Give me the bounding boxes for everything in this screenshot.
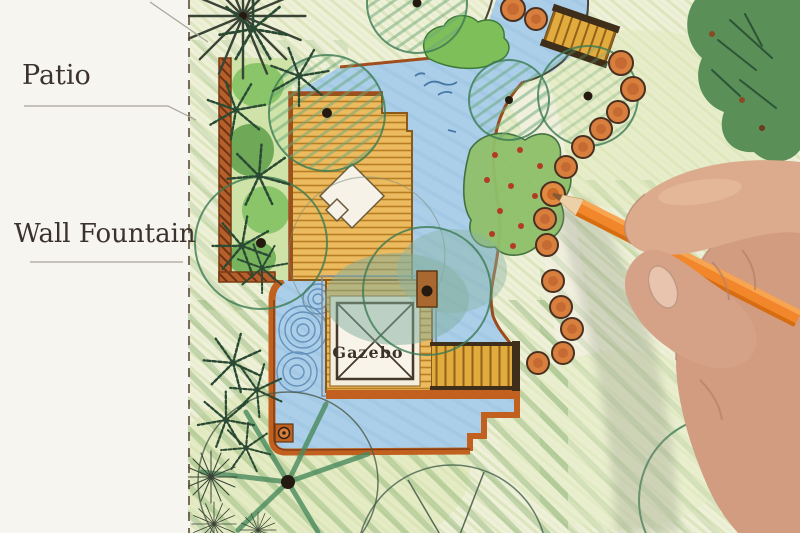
photo-of-landscape-plan: Gazebo xyxy=(0,0,800,533)
stepping-stone xyxy=(609,51,633,75)
boardwalk xyxy=(430,341,520,391)
stepping-stone xyxy=(550,296,572,318)
stepping-stone xyxy=(561,318,583,340)
stepping-stone xyxy=(590,118,612,140)
plan-drawing: Gazebo xyxy=(0,0,800,533)
stepping-stone xyxy=(527,352,549,374)
stepping-stone xyxy=(534,208,556,230)
stepping-stone xyxy=(536,234,558,256)
wall-fountain-label: Wall Fountain xyxy=(14,219,196,249)
stepping-stone xyxy=(607,101,629,123)
stepping-stone xyxy=(525,8,547,30)
tree xyxy=(469,60,549,140)
stepping-stone xyxy=(552,342,574,364)
stepping-stone xyxy=(542,270,564,292)
patio-label: Patio xyxy=(22,60,91,91)
stepping-stone xyxy=(555,156,577,178)
platform-edge-band xyxy=(326,390,520,399)
stepping-stone xyxy=(621,77,645,101)
stepping-stone xyxy=(501,0,525,21)
stepping-stone xyxy=(572,136,594,158)
spiky-plant xyxy=(185,451,237,503)
pond-fixture xyxy=(275,424,293,442)
